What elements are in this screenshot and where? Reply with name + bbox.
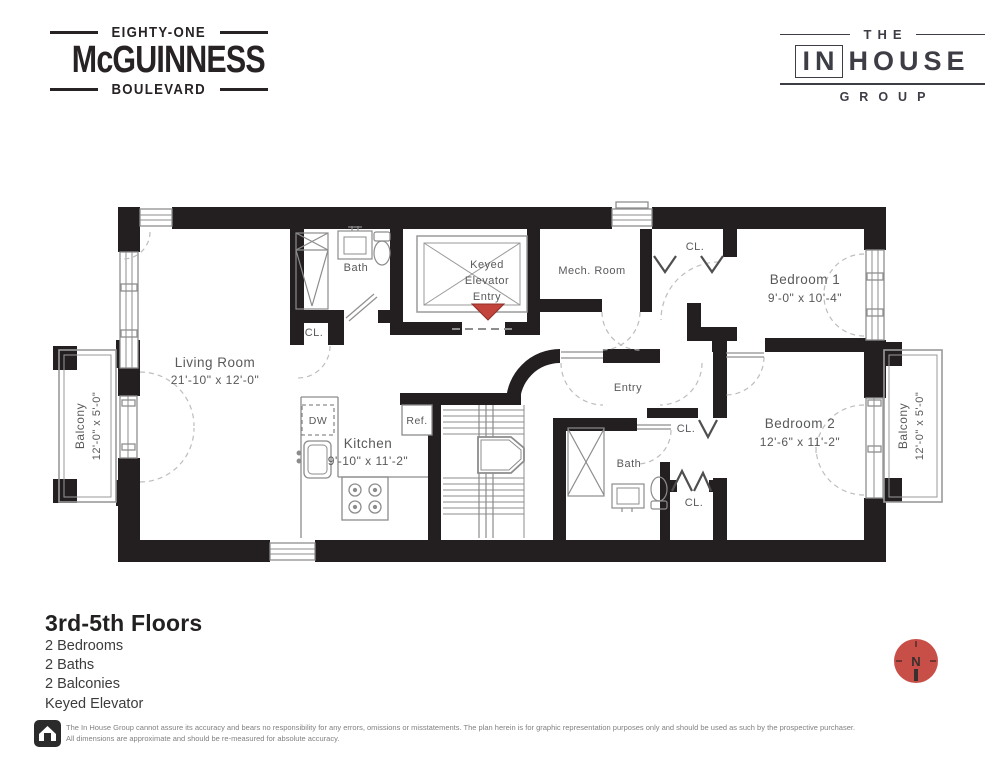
toilet-icon <box>374 232 390 265</box>
shower-icon <box>568 428 604 496</box>
bath-lower-fixtures <box>568 428 667 512</box>
kitchen-label: Kitchen <box>344 436 393 451</box>
dishwasher-label: DW <box>309 415 328 427</box>
sink-icon <box>338 226 372 259</box>
bedroom2-label: Bedroom 2 <box>765 416 836 431</box>
living-room-label: Living Room <box>175 355 256 370</box>
disclaimer: The In House Group cannot assure its acc… <box>66 722 855 744</box>
disclaimer-line1: The In House Group cannot assure its acc… <box>66 722 855 733</box>
bedroom1-dims: 9'-0" x 10'-4" <box>768 291 842 305</box>
stair-landing <box>478 437 524 473</box>
feature-balconies: 2 Balconies <box>45 675 202 694</box>
feature-baths: 2 Baths <box>45 656 202 675</box>
balcony-right-label: Balcony <box>896 403 910 449</box>
stove-icon <box>342 477 388 520</box>
elevator-label-line1: Keyed <box>470 259 504 271</box>
feature-elevator: Keyed Elevator <box>45 695 202 714</box>
disclaimer-line2: All dimensions are approximate and shoul… <box>66 733 855 744</box>
balcony-right-dims: 12'-0" x 5'-0" <box>914 392 926 461</box>
balcony-left-label: Balcony <box>73 403 87 449</box>
stairs <box>443 405 524 538</box>
compass-north-label: N <box>911 654 920 669</box>
living-room-dims: 21'-10" x 12'-0" <box>171 373 259 387</box>
entry-label: Entry <box>614 382 642 394</box>
bedroom1-label: Bedroom 1 <box>770 272 841 287</box>
closet3-label: CL. <box>677 423 696 435</box>
closet2-label: CL. <box>686 241 705 253</box>
bath-upper-label: Bath <box>344 262 369 274</box>
floor-title: 3rd-5th Floors <box>45 610 202 637</box>
balcony-left-dims: 12'-0" x 5'-0" <box>91 392 103 461</box>
feature-bedrooms: 2 Bedrooms <box>45 637 202 656</box>
elevator-label-line3: Entry <box>473 291 501 303</box>
bath-lower-label: Bath <box>617 458 642 470</box>
bifold-door-chevrons <box>654 256 723 491</box>
closet1-label: CL. <box>305 327 324 339</box>
kitchen-sink-icon <box>297 441 331 478</box>
house-icon <box>34 720 61 747</box>
compass: N <box>894 639 938 683</box>
curved-entry-wall <box>513 356 560 403</box>
bedroom2-dims: 12'-6" x 11'-2" <box>760 435 840 449</box>
floor-summary: 3rd-5th Floors 2 Bedrooms 2 Baths 2 Balc… <box>45 610 202 714</box>
mech-room-label: Mech. Room <box>558 265 625 277</box>
kitchen-dims: 9'-10" x 11'-2" <box>328 454 408 468</box>
sink-icon <box>612 484 644 512</box>
floor-plan-sheet: EIGHTY-ONE McGUINNESS BOULEVARD THE IN H… <box>0 0 1000 772</box>
closet4-label: CL. <box>685 497 704 509</box>
refrigerator-label: Ref. <box>406 415 427 427</box>
elevator-label-line2: Elevator <box>465 275 509 287</box>
